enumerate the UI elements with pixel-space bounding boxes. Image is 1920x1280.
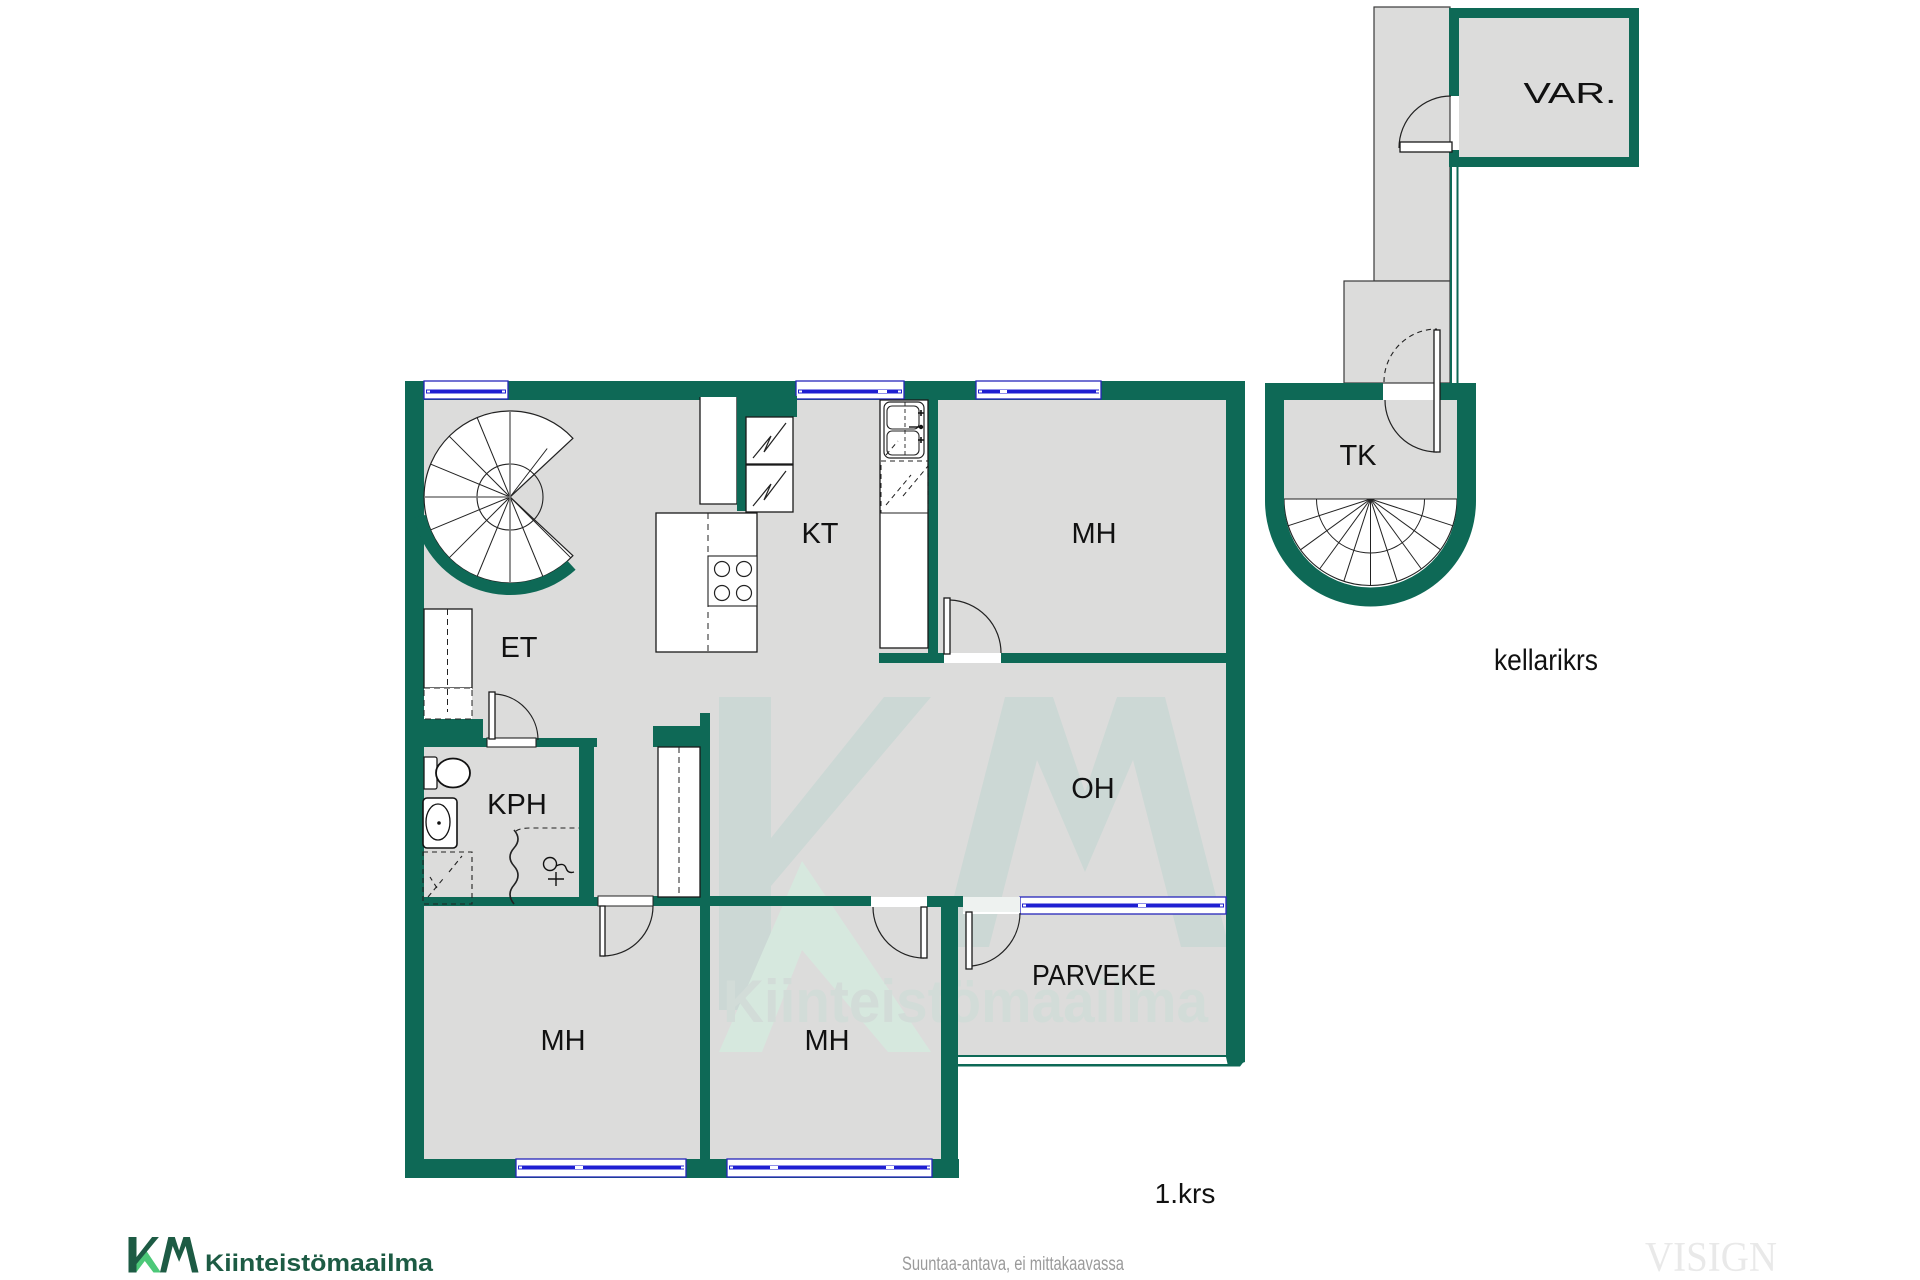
svg-text:MH: MH [804, 1025, 849, 1057]
svg-text:TK: TK [1339, 440, 1377, 472]
svg-text:VISIGN: VISIGN [1645, 1235, 1777, 1280]
svg-text:Suuntaa-antava, ei mittakaavas: Suuntaa-antava, ei mittakaavassa [902, 1254, 1124, 1275]
svg-text:PARVEKE: PARVEKE [1032, 960, 1156, 992]
svg-text:KPH: KPH [487, 789, 547, 821]
svg-text:VAR.: VAR. [1524, 78, 1617, 110]
svg-text:KT: KT [801, 518, 838, 550]
svg-text:OH: OH [1071, 773, 1115, 805]
svg-text:1.krs: 1.krs [1155, 1178, 1216, 1209]
svg-text:MH: MH [1071, 518, 1116, 550]
svg-text:Kiinteistömaailma: Kiinteistömaailma [205, 1250, 434, 1277]
svg-text:MH: MH [540, 1025, 585, 1057]
svg-text:kellarikrs: kellarikrs [1494, 644, 1598, 677]
svg-text:ET: ET [500, 632, 537, 664]
